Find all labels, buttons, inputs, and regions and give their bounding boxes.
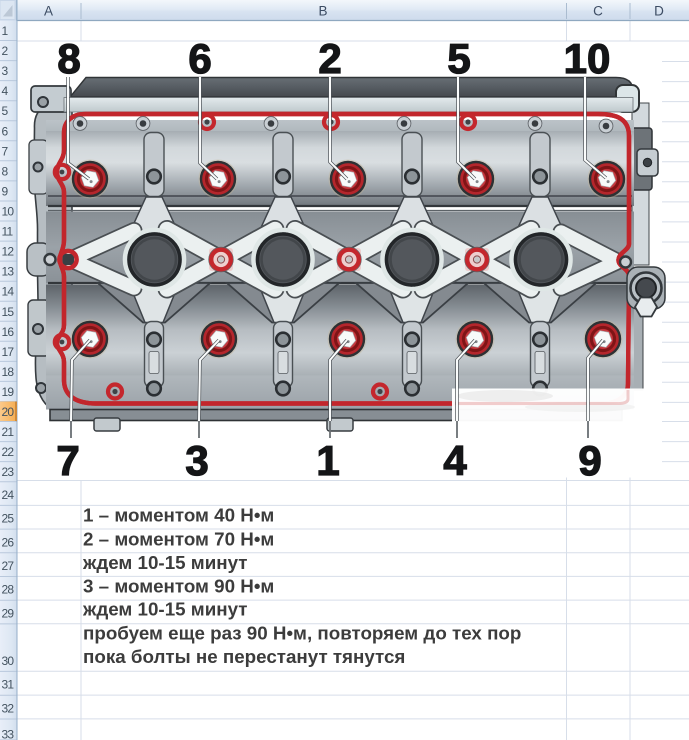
svg-text:14: 14 bbox=[2, 285, 15, 299]
svg-text:22: 22 bbox=[2, 445, 15, 459]
svg-text:2: 2 bbox=[318, 35, 341, 82]
svg-text:28: 28 bbox=[2, 583, 15, 597]
svg-text:32: 32 bbox=[2, 702, 15, 716]
svg-text:пока болты не перестанут тянут: пока болты не перестанут тянутся bbox=[83, 646, 405, 667]
svg-text:ждем 10-15 минут: ждем 10-15 минут bbox=[82, 552, 247, 573]
svg-text:11: 11 bbox=[2, 225, 14, 239]
svg-text:пробуем еще раз 90 Н•м, повтор: пробуем еще раз 90 Н•м, повторяем до тех… bbox=[83, 622, 521, 643]
svg-text:5: 5 bbox=[447, 35, 470, 82]
svg-text:13: 13 bbox=[2, 265, 15, 279]
svg-text:10: 10 bbox=[564, 35, 611, 82]
svg-text:27: 27 bbox=[2, 559, 15, 573]
svg-text:16: 16 bbox=[2, 325, 15, 339]
svg-text:30: 30 bbox=[2, 654, 15, 668]
svg-text:20: 20 bbox=[2, 405, 15, 419]
svg-text:3: 3 bbox=[185, 437, 208, 484]
svg-text:31: 31 bbox=[2, 678, 15, 692]
svg-text:A: A bbox=[44, 4, 53, 19]
svg-text:6: 6 bbox=[188, 35, 211, 82]
svg-text:B: B bbox=[318, 4, 327, 19]
svg-text:1: 1 bbox=[316, 437, 339, 484]
svg-text:3 – моментом 90 Н•м: 3 – моментом 90 Н•м bbox=[83, 576, 274, 597]
svg-text:23: 23 bbox=[2, 465, 15, 479]
svg-text:19: 19 bbox=[2, 385, 15, 399]
svg-text:25: 25 bbox=[2, 512, 15, 526]
svg-text:12: 12 bbox=[2, 245, 15, 259]
svg-text:7: 7 bbox=[56, 437, 79, 484]
svg-text:C: C bbox=[593, 4, 603, 19]
svg-text:2 – моментом 70 Н•м: 2 – моментом 70 Н•м bbox=[83, 528, 274, 549]
svg-text:24: 24 bbox=[2, 488, 15, 502]
svg-text:1 – моментом 40 Н•м: 1 – моментом 40 Н•м bbox=[83, 505, 274, 526]
svg-text:21: 21 bbox=[2, 425, 15, 439]
svg-text:26: 26 bbox=[2, 535, 15, 549]
svg-text:ждем 10-15 минут: ждем 10-15 минут bbox=[82, 599, 247, 620]
svg-text:4: 4 bbox=[443, 437, 467, 484]
svg-text:29: 29 bbox=[2, 606, 15, 620]
svg-text:33: 33 bbox=[2, 728, 15, 740]
svg-text:15: 15 bbox=[2, 305, 15, 319]
svg-text:9: 9 bbox=[578, 437, 601, 484]
svg-text:D: D bbox=[654, 4, 664, 19]
svg-text:18: 18 bbox=[2, 365, 15, 379]
svg-text:10: 10 bbox=[2, 205, 15, 219]
svg-text:17: 17 bbox=[2, 345, 15, 359]
svg-text:8: 8 bbox=[57, 35, 80, 82]
